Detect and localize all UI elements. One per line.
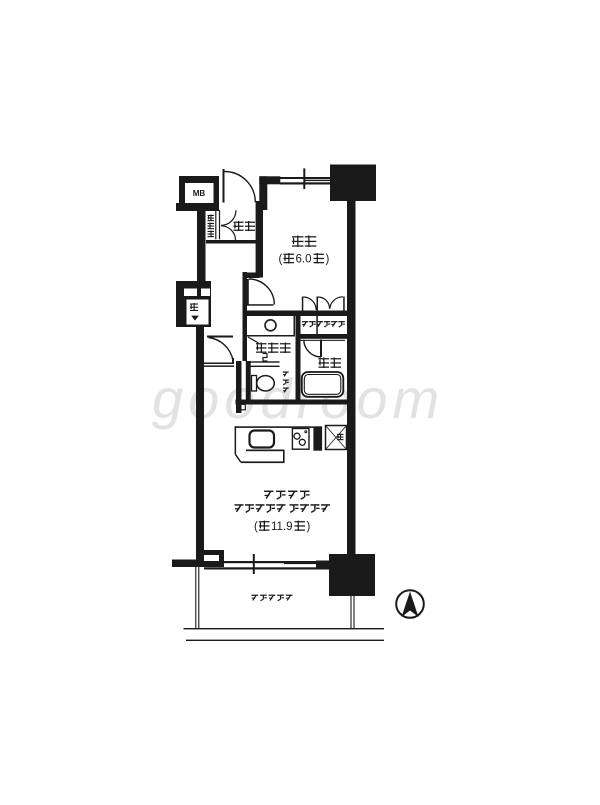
svg-text:(: ( (279, 254, 283, 266)
svg-text:): ) (326, 254, 330, 266)
svg-text:(: ( (254, 521, 258, 533)
svg-text:11.9: 11.9 (271, 521, 293, 533)
svg-text:MB: MB (193, 189, 206, 198)
svg-text:6.0: 6.0 (296, 254, 312, 266)
svg-text:): ) (307, 521, 311, 533)
